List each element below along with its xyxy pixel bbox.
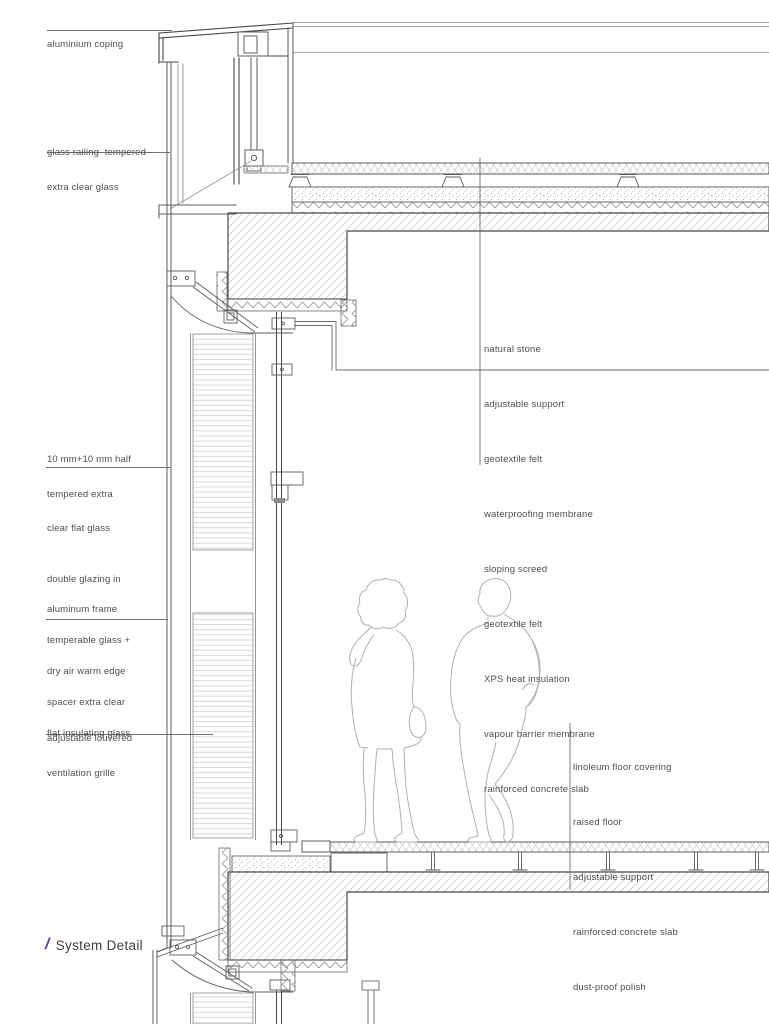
interior-riser-lines <box>362 981 379 1024</box>
mullion-anchor-bottom <box>271 830 297 851</box>
parapet-assembly <box>159 23 293 218</box>
drawing-title-text: System Detail <box>56 938 143 953</box>
roof-concrete-slab <box>228 213 769 299</box>
roof-layer-label: natural stone <box>484 341 595 359</box>
label-ventilation-grille: adjustable louvered ventilation grille <box>47 710 132 791</box>
sloping-screed-layer <box>292 187 769 202</box>
architectural-section-sheet: aluminium coping glass railing tempered … <box>0 0 769 1024</box>
floor-layer-label: rainforced concrete slab <box>573 924 678 942</box>
floor-edge-profile <box>302 841 330 852</box>
drawing-title: / System Detail <box>45 936 143 954</box>
parapet-deck-strip <box>244 166 288 173</box>
floor-concrete-slab <box>228 872 769 960</box>
perimeter-channel <box>331 853 387 872</box>
raised-floor-deck <box>330 842 769 852</box>
label-glass-railing: glass railing tempered extra clear glass <box>47 124 146 205</box>
roof-beam-soffit-insulation <box>228 299 347 311</box>
parapet-fold-line <box>170 161 251 209</box>
roof-layer-label: geotextile felt <box>484 616 595 634</box>
louver-panel-bottom <box>193 993 253 1024</box>
roof-layer-label: adjustable support <box>484 396 595 414</box>
stone-paver-layer <box>292 163 769 174</box>
roof-layer-label: sloping screed <box>484 561 595 579</box>
louver-panel-lower <box>193 613 253 838</box>
floor-build-up <box>219 841 769 1024</box>
parapet-cavity-lines <box>178 64 183 205</box>
roof-layer-label: waterproofing membrane <box>484 506 595 524</box>
roof-layer-label: XPS heat insulation <box>484 671 595 689</box>
transom-profile <box>271 472 303 503</box>
floor-layer-label: dust-proof polish <box>573 979 678 997</box>
roof-layer-label: geotextile felt <box>484 451 595 469</box>
glass-railing-panel <box>234 58 239 184</box>
louver-panel-upper <box>193 334 253 550</box>
railing-elevation-lines <box>293 23 769 53</box>
human-figure-female <box>350 579 426 843</box>
floor-layer-label: linoleum floor covering <box>573 759 678 777</box>
title-slash-icon: / <box>45 936 50 954</box>
mullion-anchor-top <box>272 318 295 375</box>
railing-inner-post <box>251 58 257 150</box>
aluminium-coping-profile <box>159 23 293 63</box>
floor-anchor-insulation <box>281 960 295 991</box>
floor-layer-label: adjustable support <box>573 869 678 887</box>
facade-outer-skin <box>153 62 171 1024</box>
roof-anchor-insulation <box>341 300 356 326</box>
floor-screed-strip <box>232 856 330 872</box>
parapet-right-face <box>288 23 293 163</box>
floor-layer-labels: linoleum floor covering raised floor adj… <box>573 722 678 1016</box>
label-aluminium-coping: aluminium coping <box>47 16 123 62</box>
xps-insulation-layer <box>292 202 769 213</box>
floor-layer-label: raised floor <box>573 814 678 832</box>
label-half-tempered-glass: 10 mm+10 mm half tempered extra clear fl… <box>47 431 131 546</box>
coping-inner-detail <box>238 32 268 56</box>
roof-pedestals <box>289 175 639 188</box>
floor-beam-side-insulation <box>219 848 230 960</box>
